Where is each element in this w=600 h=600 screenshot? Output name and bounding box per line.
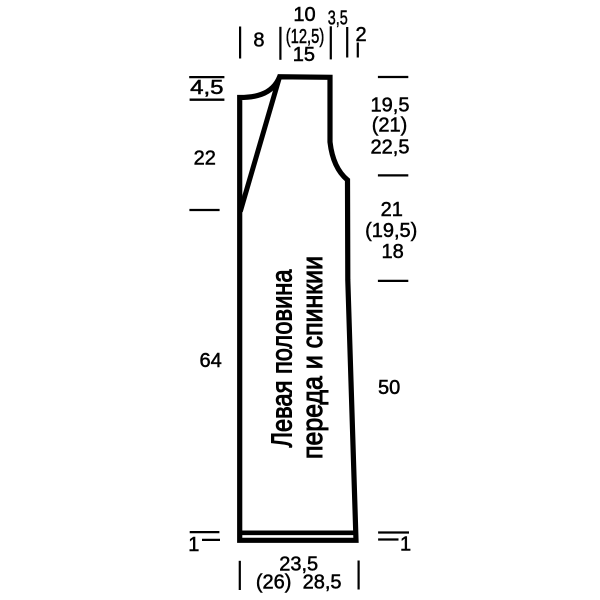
svg-text:(19,5): (19,5) [365, 220, 417, 242]
svg-text:10: 10 [293, 4, 315, 26]
svg-text:(26) 28,5: (26) 28,5 [256, 572, 342, 594]
svg-text:8: 8 [253, 30, 264, 52]
svg-text:3,5: 3,5 [328, 8, 348, 30]
svg-text:(21): (21) [372, 114, 408, 136]
svg-text:2: 2 [355, 24, 366, 46]
svg-text:64: 64 [199, 350, 221, 372]
svg-text:50: 50 [378, 377, 400, 399]
svg-text:переда и спинкии: переда и спинкии [297, 256, 329, 459]
svg-text:1: 1 [188, 534, 199, 556]
svg-text:22,5: 22,5 [371, 137, 410, 159]
svg-text:4,5: 4,5 [190, 77, 223, 99]
svg-text:21: 21 [381, 199, 403, 221]
svg-text:22: 22 [194, 147, 216, 169]
svg-text:1: 1 [400, 534, 411, 556]
svg-text:Левая половина: Левая половина [267, 269, 299, 448]
svg-text:15: 15 [293, 44, 315, 66]
svg-text:18: 18 [381, 241, 403, 263]
svg-text:19,5: 19,5 [371, 95, 410, 117]
